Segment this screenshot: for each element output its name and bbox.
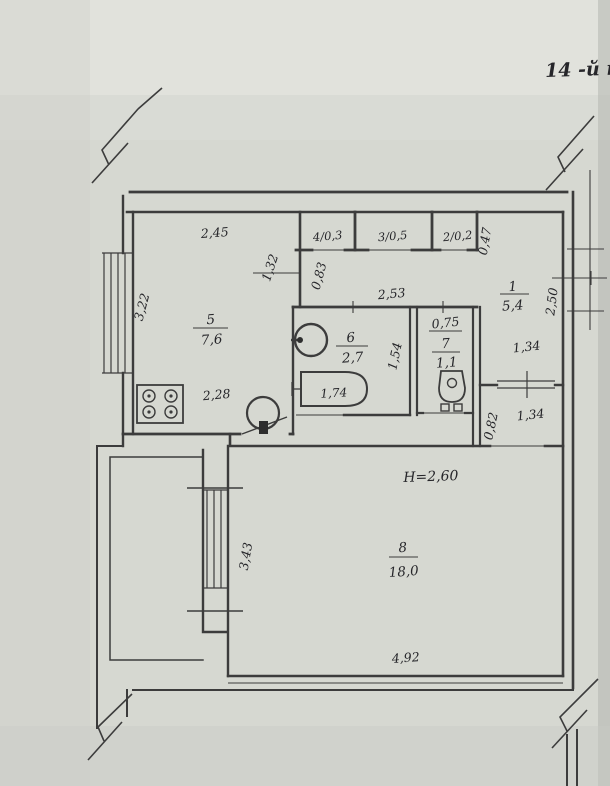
paper-light-top (0, 0, 610, 95)
sheet-title: 14 -й п (545, 57, 610, 82)
floor-plan-photo: 14 -й п 2,45 4/0,3 3/0,5 2/0,2 0,47 1,32… (0, 0, 610, 786)
closet-4-label: 4/0,3 (311, 228, 343, 245)
paper-light-band (0, 95, 610, 140)
closet-3-label: 3/0,5 (377, 228, 408, 245)
sink-drain (259, 421, 268, 434)
closet-2-label: 2/0,2 (441, 228, 473, 245)
dim-kitchen-bottom: 2,28 (201, 386, 231, 403)
room-kitchen-area: 7,6 (200, 331, 223, 348)
room-toilet-area: 1,1 (435, 354, 458, 371)
dim-bath-block-top: 2,53 (376, 285, 406, 302)
room-bathroom-area: 2,7 (340, 349, 364, 367)
dim-bathtub: 1,74 (320, 385, 347, 400)
stove-burner-dot (147, 410, 150, 413)
stove-burner-dot (147, 394, 150, 397)
room-kitchen-number: 5 (206, 312, 216, 329)
floor-plan-drawing: 14 -й п 2,45 4/0,3 3/0,5 2/0,2 0,47 1,32… (0, 0, 610, 786)
room-toilet-number: 7 (441, 336, 451, 353)
stove-burner-dot (169, 394, 172, 397)
room-living-number: 8 (398, 540, 408, 557)
stove-burner-dot (169, 410, 172, 413)
basin-drain (297, 337, 303, 343)
dim-living-bottom: 4,92 (390, 649, 420, 666)
room-hall-number: 1 (508, 279, 518, 296)
dim-kitchen-top: 2,45 (199, 224, 229, 241)
dim-toilet-top: 0,75 (431, 314, 460, 332)
room-bathroom-number: 6 (346, 330, 356, 347)
paper-background (0, 0, 610, 786)
ceiling-height-note: H=2,60 (402, 468, 459, 486)
room-living-area: 18,0 (388, 563, 420, 581)
room-hall-area: 5,4 (501, 297, 524, 314)
paper-left-shade (0, 0, 90, 786)
dim-hall-door: 1,34 (512, 338, 541, 356)
paper-right-edge (598, 0, 610, 786)
dim-entry-door: 1,34 (516, 406, 545, 424)
